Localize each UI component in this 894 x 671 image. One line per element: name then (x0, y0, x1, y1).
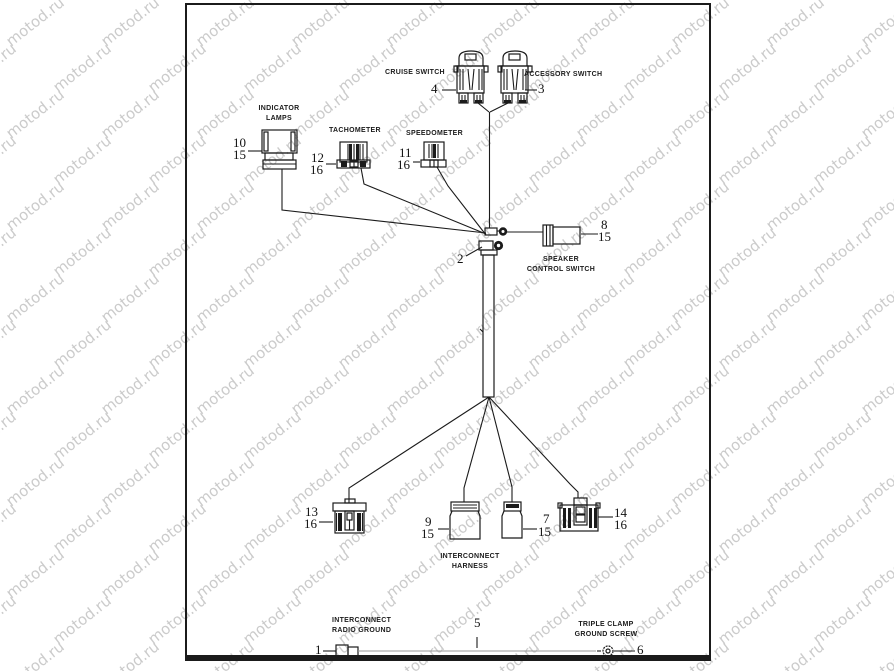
label-speaker-control-switch: SPEAKER CONTROL SWITCH (516, 255, 606, 275)
callout-16: 16 (304, 518, 317, 530)
callout-16: 16 (310, 164, 323, 176)
callout-5: 5 (474, 617, 481, 629)
connector-7-icon (502, 502, 522, 538)
connector-13-icon (333, 499, 366, 533)
callout-3: 3 (538, 83, 545, 95)
label-cruise-switch: CRUISE SWITCH (385, 68, 445, 78)
indicator-lamps-icon (262, 130, 486, 233)
connector-9-icon (450, 502, 480, 539)
label-speedometer: SPEEDOMETER (406, 129, 463, 139)
callout-leader-lines (248, 90, 613, 529)
parts-diagram-page: motod.rumotod.rumotod.rumotod.rumotod.ru… (0, 0, 894, 671)
label-interconnect-harness: INTERCONNECT HARNESS (420, 552, 520, 572)
callout-4: 4 (431, 83, 438, 95)
callout-2: 2 (457, 253, 464, 265)
label-tachometer: TACHOMETER (329, 126, 381, 136)
speaker-control-switch-icon (507, 225, 580, 246)
label-interconnect-radio-ground: INTERCONNECT RADIO GROUND (332, 616, 391, 636)
label-triple-clamp-ground-screw: TRIPLE CLAMP GROUND SCREW (566, 620, 646, 640)
switch-wires (478, 103, 508, 228)
callout-15: 15 (538, 526, 551, 538)
callout-15: 15 (421, 528, 434, 540)
callout-6: 6 (637, 644, 644, 656)
callout-16: 16 (397, 159, 410, 171)
callout-15: 15 (233, 149, 246, 161)
label-accessory-switch: ACCESSORY SWITCH (524, 70, 602, 80)
cruise-switch-icon (454, 51, 488, 103)
connector-14-icon (558, 498, 600, 531)
callout-16: 16 (614, 519, 627, 531)
ground-wire-assembly (323, 637, 635, 657)
callout-1: 1 (315, 644, 322, 656)
label-indicator-lamps: INDICATOR LAMPS (244, 104, 314, 124)
callout-15: 15 (598, 231, 611, 243)
